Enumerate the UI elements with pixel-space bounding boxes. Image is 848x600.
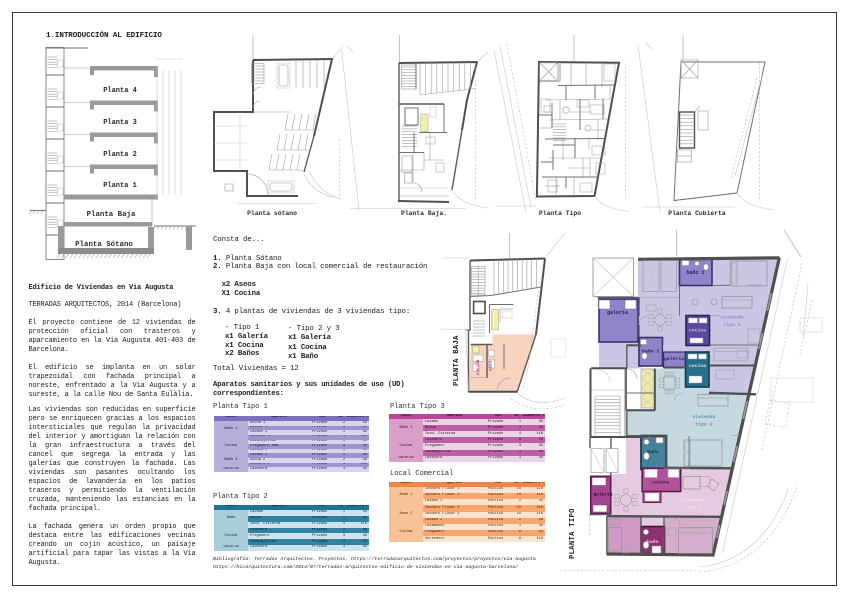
- svg-text:Planta 2: Planta 2: [103, 151, 137, 159]
- svg-text:baño: baño: [647, 449, 659, 455]
- svg-text:baño 2: baño 2: [642, 349, 659, 355]
- svg-text:tipo 3: tipo 3: [684, 505, 701, 511]
- svg-text:Planta Sótano: Planta Sótano: [75, 241, 133, 249]
- svg-text:aseo: aseo: [489, 360, 494, 371]
- svg-text:vivienda: vivienda: [692, 414, 715, 420]
- svg-text:galería: galería: [664, 356, 684, 362]
- svg-text:Planta Cubierta: Planta Cubierta: [668, 210, 726, 217]
- svg-text:tipo 2: tipo 2: [695, 422, 712, 428]
- svg-text:vivienda: vivienda: [681, 497, 704, 503]
- svg-text:vivienda: vivienda: [720, 315, 743, 321]
- svg-text:baño: baño: [647, 539, 659, 545]
- svg-text:cocina: cocina: [652, 480, 669, 486]
- svg-text:Planta Baja.: Planta Baja.: [401, 210, 447, 217]
- svg-text:cocina: cocina: [476, 359, 481, 375]
- svg-text:tipo 1: tipo 1: [723, 322, 740, 328]
- svg-text:baño 1: baño 1: [686, 270, 704, 276]
- svg-text:Planta 4: Planta 4: [103, 87, 137, 95]
- svg-text:Planta 1: Planta 1: [103, 182, 137, 190]
- svg-text:Planta Baja: Planta Baja: [87, 211, 136, 219]
- svg-text:cocina: cocina: [689, 363, 706, 369]
- svg-text:cocina: cocina: [689, 328, 706, 334]
- svg-text:galeria: galeria: [594, 492, 613, 498]
- svg-text:galería: galería: [607, 310, 628, 316]
- svg-text:Planta sótano: Planta sótano: [247, 210, 297, 217]
- svg-text:Planta Tipo: Planta Tipo: [539, 210, 581, 217]
- svg-text:Planta 3: Planta 3: [103, 119, 137, 127]
